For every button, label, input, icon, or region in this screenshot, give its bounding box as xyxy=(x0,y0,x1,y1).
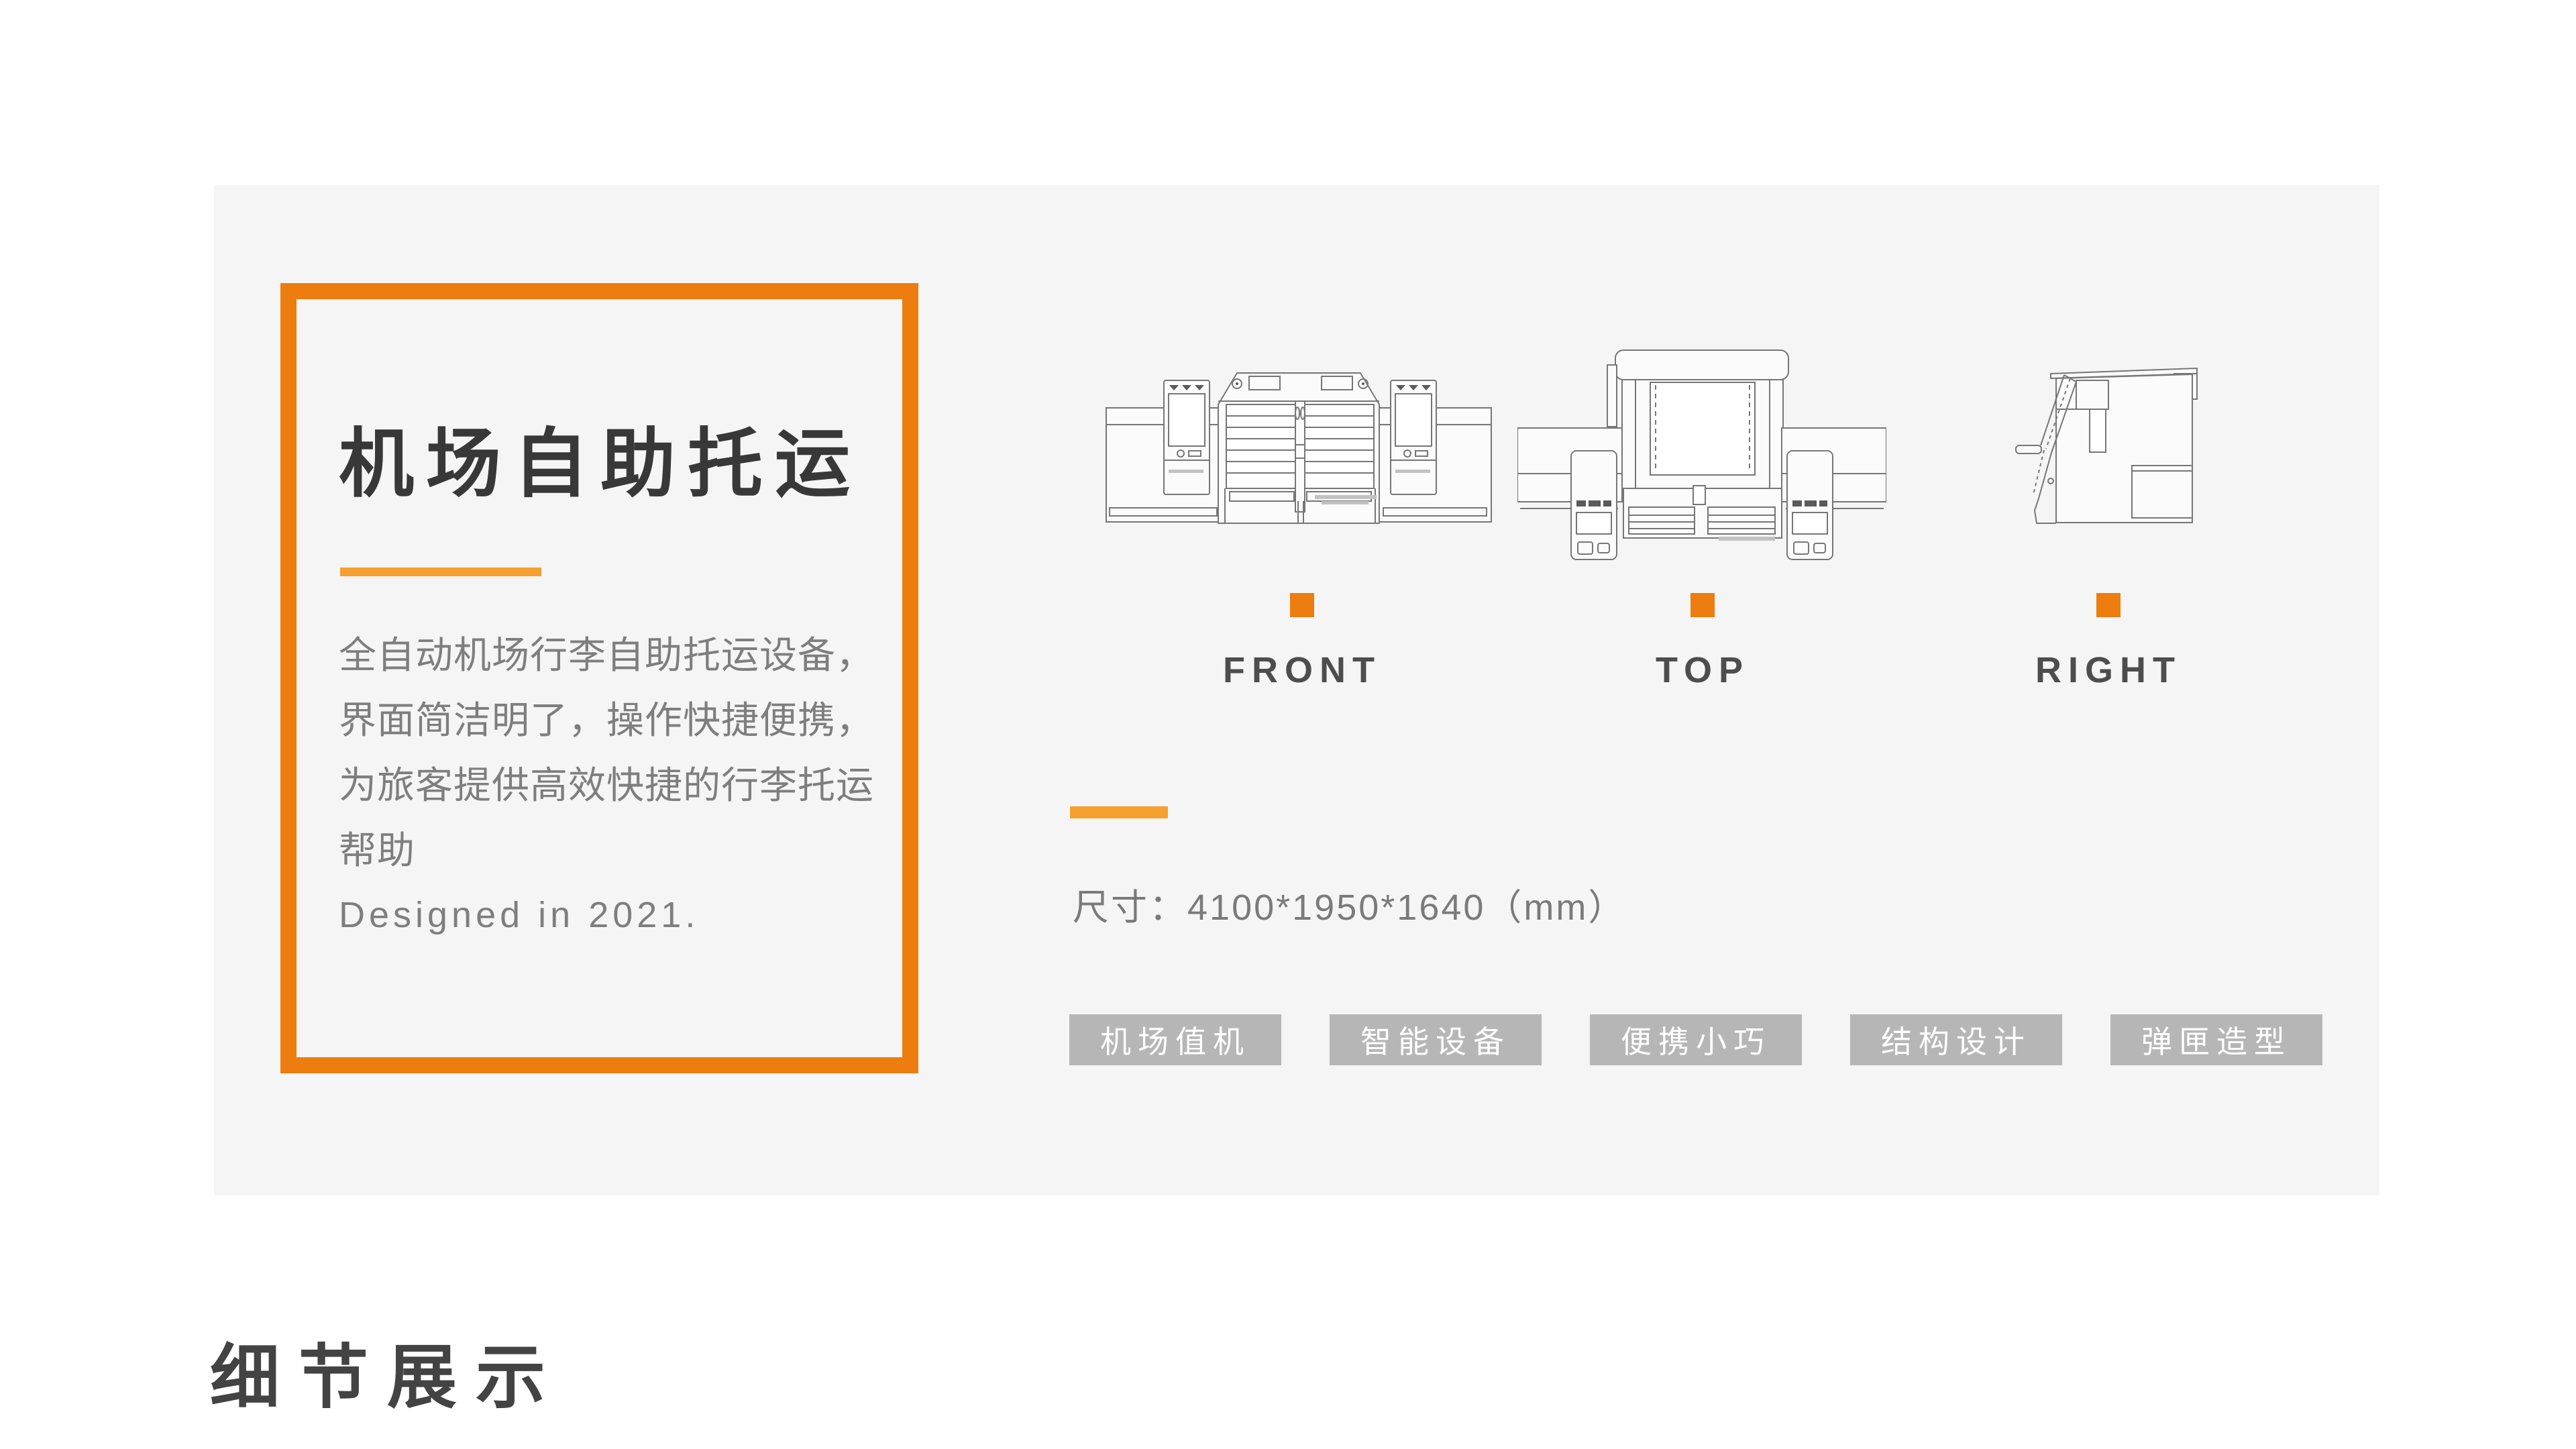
title-underline xyxy=(340,568,541,576)
top-view-marker-icon xyxy=(1690,593,1715,617)
right-view-drawing xyxy=(2015,367,2199,525)
description-line: 帮助 xyxy=(339,818,875,883)
description-line: 为旅客提供高效快捷的行李托运 xyxy=(339,753,875,818)
right-view-label: RIGHT xyxy=(1974,649,2243,691)
front-view-label: FRONT xyxy=(1168,649,1436,691)
tag-chip: 机场值机 xyxy=(1069,1014,1281,1065)
tag-chip: 便携小巧 xyxy=(1590,1014,1802,1065)
product-description: 全自动机场行李自助托运设备， 界面简洁明了，操作快捷便携， 为旅客提供高效快捷的… xyxy=(339,623,875,948)
tag-chip: 弹匣造型 xyxy=(2110,1014,2322,1065)
section-heading: 细节展示 xyxy=(210,1320,564,1421)
tag-row: 机场值机 智能设备 便携小巧 结构设计 弹匣造型 xyxy=(1069,1014,2322,1065)
designed-year-note: Designed in 2021. xyxy=(339,883,875,948)
description-line: 界面简洁明了，操作快捷便携， xyxy=(339,688,875,753)
tag-chip: 结构设计 xyxy=(1850,1014,2062,1065)
top-view-label: TOP xyxy=(1568,649,1837,691)
front-view-drawing xyxy=(1106,368,1495,525)
spec-accent-dash xyxy=(1070,806,1168,818)
description-line: 全自动机场行李自助托运设备， xyxy=(339,623,875,688)
top-view-drawing xyxy=(1517,349,1886,560)
right-view-marker-icon xyxy=(2096,593,2121,617)
product-title: 机场自助托运 xyxy=(339,411,943,518)
front-view-marker-icon xyxy=(1290,593,1314,617)
tag-chip: 智能设备 xyxy=(1330,1014,1542,1065)
dimensions-text: 尺寸：4100*1950*1640（mm） xyxy=(1073,877,1626,930)
